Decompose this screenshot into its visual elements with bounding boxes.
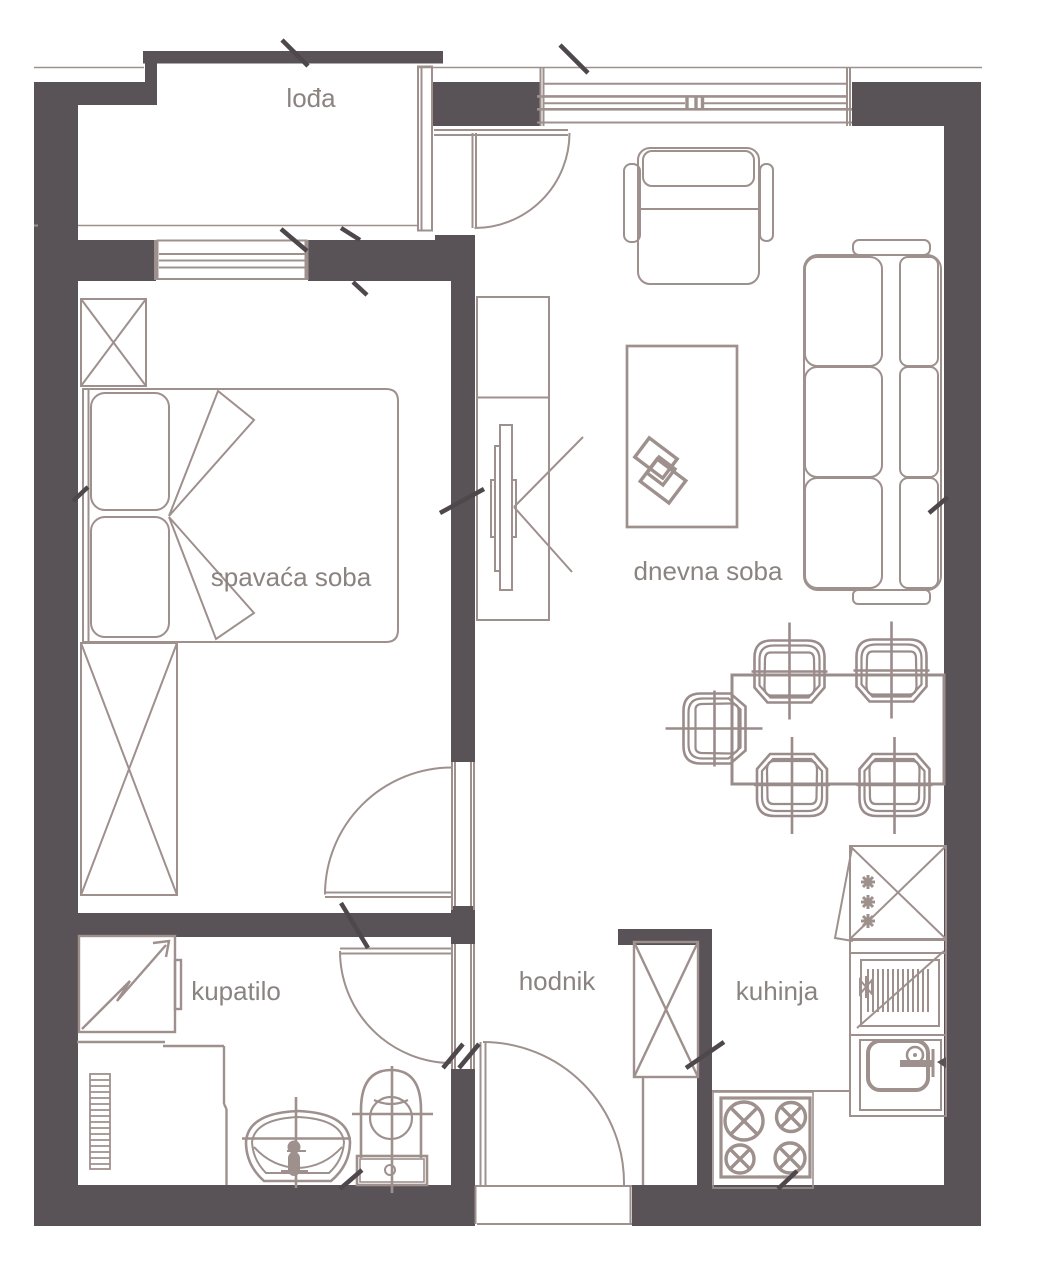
svg-text:hodnik: hodnik <box>519 966 597 996</box>
svg-text:dnevna soba: dnevna soba <box>634 556 783 586</box>
svg-text:kupatilo: kupatilo <box>191 976 281 1006</box>
svg-text:spavaća soba: spavaća soba <box>211 562 372 592</box>
svg-text:lođa: lođa <box>286 83 336 113</box>
svg-text:kuhinja: kuhinja <box>736 976 819 1006</box>
